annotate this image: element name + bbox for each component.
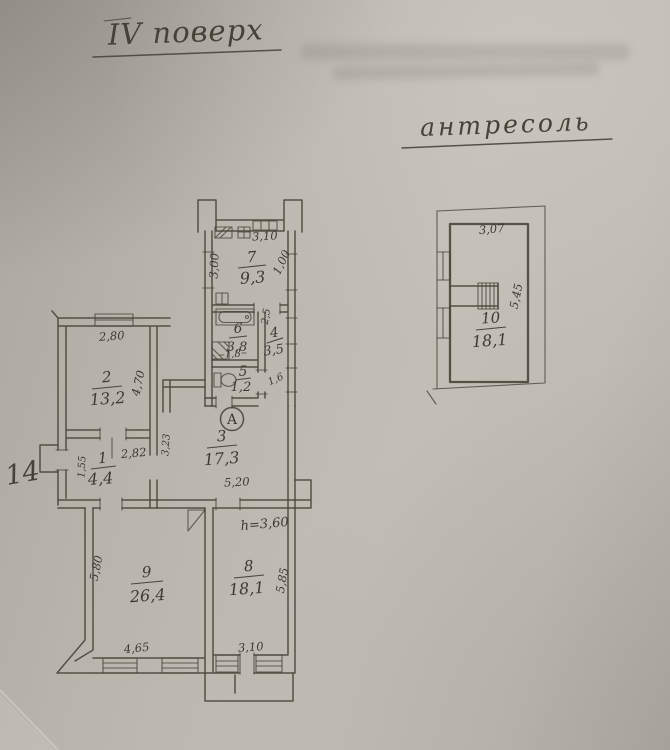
dim-room8-bottom: 3,10: [237, 639, 264, 655]
dim-room2-right: 4,70: [128, 369, 148, 398]
room-number: 6: [234, 321, 243, 337]
room-2-label: 2 13,2: [89, 368, 126, 410]
room-number: 3: [216, 427, 227, 446]
dim-room7-left: 3,00: [206, 253, 221, 279]
dim-mezzanine-right: 5,45: [507, 282, 526, 310]
room-10-label: 10 18,1: [471, 308, 508, 351]
door-swing: [188, 510, 205, 531]
room-area: 9,3: [239, 267, 266, 288]
mezzanine-title: антресоль: [420, 107, 592, 142]
room-area: 18,1: [471, 330, 508, 351]
dim-room6-width: 1,8: [225, 349, 241, 361]
main-floor-plan: A 7 9,3 6 3,8 5 1,2 4 3,5: [40, 200, 311, 701]
room-area: 18,1: [228, 578, 265, 599]
room-number: 2: [100, 368, 112, 387]
room-area: 3,5: [262, 342, 285, 360]
window-symbol: [256, 655, 282, 672]
section-marker: A: [226, 412, 238, 428]
room-area: 4,4: [86, 468, 114, 489]
room-4-label: 4 3,5: [260, 324, 286, 360]
window-symbol: [437, 308, 450, 338]
room-number: 5: [239, 364, 248, 380]
appliance-icon: [216, 293, 228, 304]
wall-stub: [450, 283, 498, 309]
balcony: [205, 673, 293, 701]
window-symbol: [95, 314, 133, 326]
room-number: 8: [243, 557, 254, 576]
room-9-label: 9 26,4: [128, 563, 166, 607]
window-symbol: [216, 655, 238, 672]
dim-room9-left: 5,80: [87, 554, 106, 582]
room-7-label: 7 9,3: [238, 248, 266, 288]
dim-room3-left: 3,23: [160, 433, 173, 456]
room-5-label: 5 1,2: [231, 364, 252, 395]
room-number: 10: [480, 308, 501, 327]
stove-icon: [215, 227, 232, 238]
dim-room8-ceiling-height: h=3,60: [240, 515, 289, 534]
room-number: 9: [141, 563, 152, 582]
room-number: 1: [97, 449, 108, 468]
mezzanine-plan: 10 18,1 3,07 5,45: [427, 206, 545, 404]
room-area: 1,2: [231, 380, 252, 395]
window-symbol: [162, 658, 198, 673]
dim-room4-bottom: 1,6: [266, 371, 286, 388]
dim-room3-bottom: 5,20: [224, 474, 250, 489]
window-symbol: [437, 252, 450, 280]
dim-room7-right: 1,00: [270, 248, 294, 277]
dim-room1-left: 1,55: [76, 455, 88, 478]
scanned-floor-plan-photo: IV поверх антресоль 14: [0, 0, 670, 750]
paper-corner: [0, 694, 56, 750]
room-8-label: 8 18,1: [228, 557, 265, 600]
sink-icon: [238, 227, 250, 238]
dim-room2-top: 2,80: [97, 328, 125, 344]
margin-number: 14: [3, 455, 42, 491]
floor-plan-drawing: IV поверх антресоль 14: [0, 0, 670, 750]
room-number: 7: [246, 248, 257, 267]
rooms-9-8-walls: [57, 406, 295, 673]
dim-room7-top: 3,10: [252, 228, 278, 243]
dim-room9-bottom: 4,65: [122, 640, 150, 657]
room-area: 17,3: [203, 448, 240, 469]
room-area: 26,4: [128, 585, 166, 607]
window-symbol: [103, 658, 137, 673]
entrance-step: [40, 445, 58, 472]
room-3-label: 3 17,3: [203, 427, 240, 470]
dim-room4-top: 2,5: [260, 308, 274, 327]
landing-walls: [163, 380, 205, 412]
room-area: 13,2: [89, 388, 126, 409]
dim-room1-top: 2,82: [119, 445, 147, 461]
dim-mezzanine-top: 3,07: [478, 221, 505, 237]
balcony-door-ticks: [240, 653, 254, 674]
